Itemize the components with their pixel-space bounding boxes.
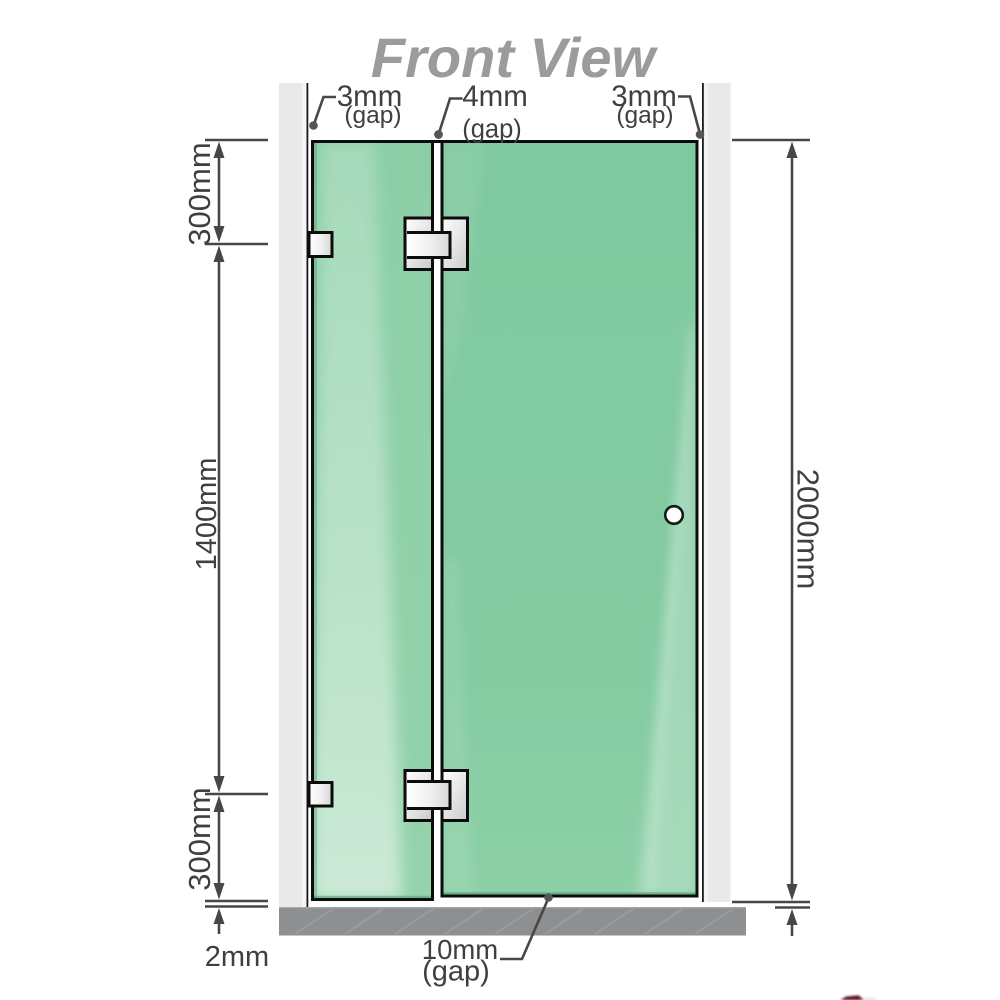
svg-text:4mm: 4mm <box>462 80 528 113</box>
svg-text:(gap): (gap) <box>422 956 490 988</box>
svg-text:300mm: 300mm <box>182 787 217 890</box>
svg-text:2000mm: 2000mm <box>791 469 826 590</box>
svg-text:(gap): (gap) <box>462 116 522 144</box>
svg-text:2mm: 2mm <box>205 941 269 973</box>
svg-text:(gap): (gap) <box>344 102 401 129</box>
svg-text:(gap): (gap) <box>616 102 673 129</box>
svg-text:300mm: 300mm <box>182 142 217 245</box>
svg-text:1400mm: 1400mm <box>191 458 223 571</box>
